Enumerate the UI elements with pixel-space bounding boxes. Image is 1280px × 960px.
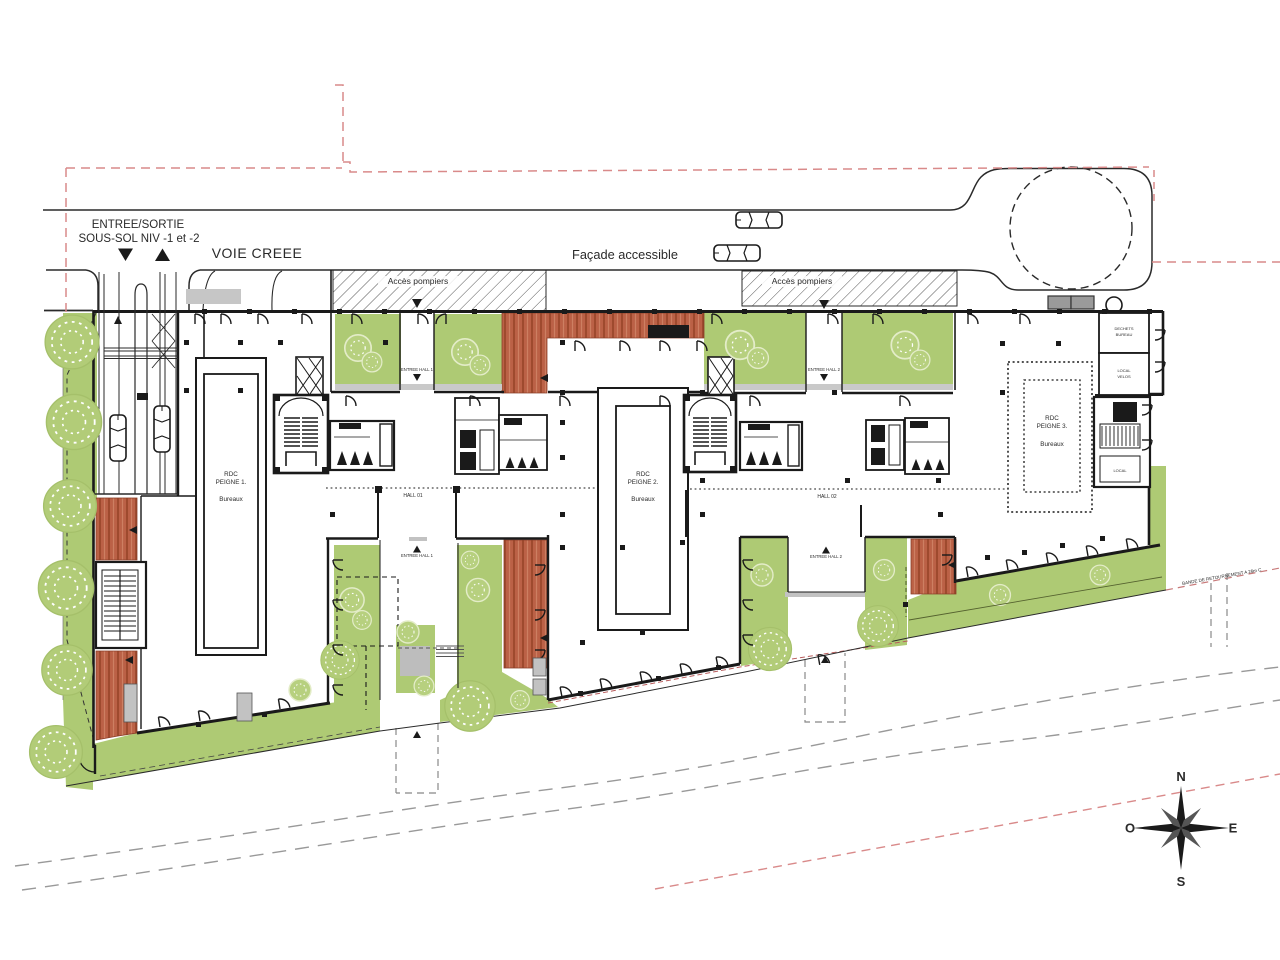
svg-text:SOUS-SOL NIV -1 et -2: SOUS-SOL NIV -1 et -2 — [79, 233, 200, 245]
svg-text:ENTREE HALL 1: ENTREE HALL 1 — [401, 367, 434, 372]
svg-text:Accès pompiers: Accès pompiers — [388, 276, 448, 286]
svg-text:HALL 02: HALL 02 — [817, 494, 836, 500]
svg-text:DECHETS: DECHETS — [1114, 326, 1133, 331]
svg-text:VOIE CREEE: VOIE CREEE — [212, 245, 303, 261]
svg-text:ENTREE/SORTIE: ENTREE/SORTIE — [92, 219, 185, 231]
svg-text:ENTREE HALL 2: ENTREE HALL 2 — [808, 367, 841, 372]
svg-text:S: S — [1177, 874, 1186, 889]
svg-text:PEIGNE 3.: PEIGNE 3. — [1037, 423, 1068, 430]
svg-text:LOCAL: LOCAL — [1113, 468, 1127, 473]
svg-text:HALL 01: HALL 01 — [403, 493, 422, 499]
svg-text:Bureaux: Bureaux — [219, 496, 243, 503]
svg-text:N: N — [1176, 769, 1185, 784]
svg-text:E: E — [1229, 821, 1238, 836]
svg-text:RDC: RDC — [224, 471, 238, 478]
svg-text:O: O — [1125, 821, 1135, 836]
svg-text:PEIGNE 1.: PEIGNE 1. — [216, 479, 247, 486]
svg-text:LOCAL: LOCAL — [1117, 368, 1131, 373]
svg-text:RDC: RDC — [1045, 415, 1059, 422]
svg-text:BUREAU: BUREAU — [1116, 332, 1133, 337]
svg-text:RDC: RDC — [636, 471, 650, 478]
svg-text:VELOS: VELOS — [1117, 374, 1131, 379]
svg-text:ENTREE HALL 1: ENTREE HALL 1 — [401, 553, 434, 558]
svg-text:PEIGNE 2.: PEIGNE 2. — [628, 479, 659, 486]
svg-text:Accès pompiers: Accès pompiers — [772, 276, 832, 286]
svg-text:Façade accessible: Façade accessible — [572, 247, 678, 262]
svg-text:Bureaux: Bureaux — [1040, 441, 1064, 448]
svg-text:ENTREE HALL 2: ENTREE HALL 2 — [810, 554, 843, 559]
svg-text:Bureaux: Bureaux — [631, 496, 655, 503]
